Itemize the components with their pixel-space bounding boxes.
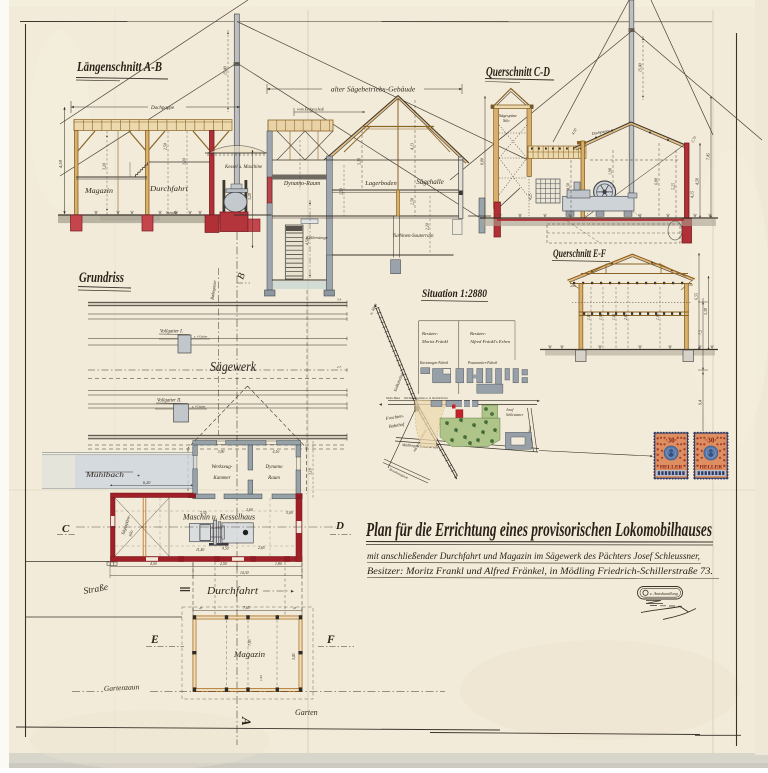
svg-text:Schleussner: Schleussner (506, 413, 524, 417)
svg-text:Sägehalle: Sägehalle (416, 178, 444, 186)
svg-text:Längenschnitt A-B: Längenschnitt A-B (76, 60, 162, 75)
svg-text:Alfred Fränkl's Erben: Alfred Fränkl's Erben (469, 339, 511, 344)
svg-text:mit anschließender Durchfahrt: mit anschließender Durchfahrt und Magazi… (367, 551, 700, 562)
svg-text:Kammer: Kammer (212, 476, 230, 481)
svg-text:Werkzeug-: Werkzeug- (212, 465, 233, 470)
svg-text:Posamentier-Fabrik: Posamentier-Fabrik (467, 361, 497, 365)
svg-text:D: D (335, 520, 344, 532)
svg-text:Turbinen-Souterrain: Turbinen-Souterrain (392, 234, 434, 239)
svg-text:Gartenzaun: Gartenzaun (104, 682, 140, 693)
svg-text:Silo: Silo (503, 118, 510, 123)
svg-text:HELLER: HELLER (700, 465, 723, 471)
svg-text:Plan für die Errichtung eines: Plan für die Errichtung eines provisoris… (365, 519, 712, 541)
svg-text:Querschnitt C-D: Querschnitt C-D (486, 64, 550, 79)
svg-text:Wohn-Haus: Wohn-Haus (386, 396, 401, 400)
svg-text:Besitzer:: Besitzer: (470, 331, 487, 336)
svg-text:vom Erdgeschoß: vom Erdgeschoß (297, 107, 324, 112)
svg-text:Moritz Fränkl: Moritz Fränkl (421, 339, 449, 344)
svg-text:Durchfahrt: Durchfahrt (206, 585, 259, 597)
svg-text:Magazin: Magazin (233, 649, 265, 659)
svg-text:HELLER: HELLER (660, 465, 683, 471)
svg-text:45: 45 (293, 606, 297, 610)
svg-text:Durchfahrt: Durchfahrt (149, 184, 189, 193)
svg-text:A: A (239, 716, 254, 726)
svg-text:·30·: ·30· (705, 436, 717, 444)
svg-text:Raum: Raum (267, 476, 280, 481)
svg-text:C: C (62, 523, 70, 535)
svg-text:Lagerboden: Lagerboden (364, 180, 396, 187)
svg-text:Besitzer: Moritz Frankl und Al: Besitzer: Moritz Frankl und Alfred Fränk… (367, 566, 713, 577)
svg-text:alter Sägebetriebs-Gebäude: alter Sägebetriebs-Gebäude (331, 85, 416, 94)
svg-text:45: 45 (199, 606, 203, 610)
svg-text:Dynamo: Dynamo (265, 465, 283, 470)
svg-text:Querschnitt E-F: Querschnitt E-F (553, 248, 606, 260)
svg-text:Sägewerk: Sägewerk (210, 359, 257, 374)
svg-text:Dynamo-Raum: Dynamo-Raum (283, 181, 321, 187)
svg-text:Vollgatter I.: Vollgatter I. (160, 330, 183, 335)
svg-text:Mühlbach: Mühlbach (85, 470, 125, 479)
svg-text:z. 4 Gatter: z. 4 Gatter (193, 335, 208, 339)
svg-text:Kessel u. Maschine: Kessel u. Maschine (224, 165, 263, 170)
svg-text:Situation 1:2880: Situation 1:2880 (422, 288, 487, 300)
svg-text:Besitzer:: Besitzer: (422, 331, 439, 336)
svg-text:Kartonagen-Fabrik: Kartonagen-Fabrik (419, 361, 449, 365)
svg-text:Maschin u. Kesselhaus: Maschin u. Kesselhaus (182, 513, 255, 522)
svg-text:z. 4 Gatter: z. 4 Gatter (191, 405, 206, 409)
svg-text:F: F (326, 634, 335, 646)
svg-text:Josef: Josef (506, 408, 514, 412)
svg-text:4/20: 4/20 (570, 284, 576, 288)
svg-text:E: E (150, 634, 159, 646)
svg-text:Magazin: Magazin (84, 186, 113, 195)
svg-text:·30·: ·30· (665, 436, 677, 444)
svg-text:z. Amtshandlung: z. Amtshandlung (649, 591, 678, 596)
svg-text:Garten: Garten (295, 708, 318, 717)
svg-text:Dachpappe: Dachpappe (150, 106, 175, 111)
svg-text:Vollgatter II.: Vollgatter II. (157, 399, 182, 404)
svg-text:Grundriss: Grundriss (79, 270, 124, 286)
svg-text:Werksbahngeleise z. d. Steinbr: Werksbahngeleise z. d. Steinbrüchen (404, 396, 448, 400)
